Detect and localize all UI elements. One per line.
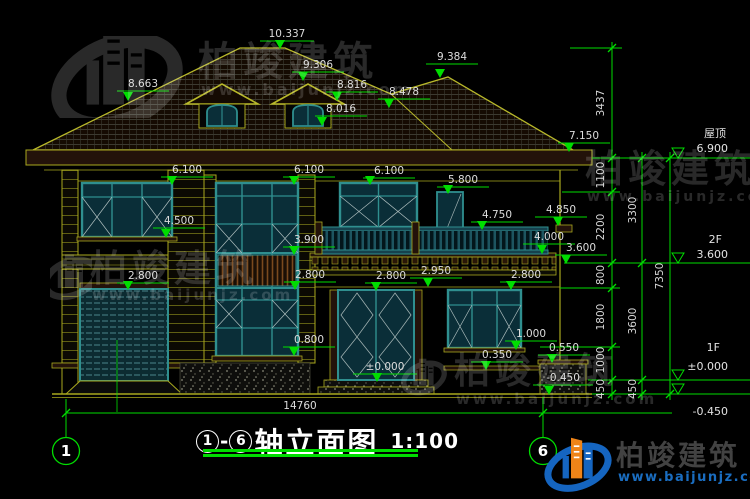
svg-text:2.800: 2.800	[128, 270, 158, 282]
level-roof-value: 6.900	[697, 142, 729, 155]
title-underline-2	[203, 454, 418, 457]
level-2f-value: 3.600	[697, 248, 729, 261]
svg-text:5.800: 5.800	[448, 174, 478, 186]
dim-800: 800	[595, 265, 607, 285]
cad-elevation-canvas: 3437 1100 2200 800 1800 1000 450 3300 36…	[0, 0, 750, 499]
dim-overall-width: 14760	[283, 400, 316, 412]
dim-7350: 7350	[654, 263, 666, 290]
svg-text:3.600: 3.600	[566, 242, 596, 254]
level-2f-label: 2F	[709, 233, 722, 246]
svg-text:0.350: 0.350	[482, 349, 512, 361]
svg-text:3.900: 3.900	[294, 234, 324, 246]
dim-3437: 3437	[595, 90, 607, 117]
svg-text:10.337: 10.337	[269, 28, 306, 40]
svg-text:1.000: 1.000	[516, 328, 546, 340]
step-2	[318, 387, 434, 394]
step-1	[324, 380, 428, 387]
level-1f-label: 1F	[707, 341, 720, 354]
svg-text:9.384: 9.384	[437, 51, 467, 63]
sill-band-right	[444, 366, 540, 370]
axis-number-left: 1	[61, 442, 71, 460]
spot-slab-right: 3.600	[555, 242, 607, 264]
stair-window-spandrel	[218, 255, 296, 286]
svg-text:8.478: 8.478	[389, 86, 419, 98]
stair-window	[216, 183, 298, 356]
sill-2f-left	[77, 237, 177, 241]
sill-stair-window	[212, 356, 302, 361]
level-marker-texts: 屋顶 6.900 2F 3.600 1F ±0.000 -0.450	[687, 127, 728, 418]
window-1f-right	[448, 290, 521, 348]
dim-1000: 1000	[595, 347, 607, 374]
railing-post-mid	[412, 222, 419, 254]
door-post-left	[330, 290, 338, 380]
svg-text:8.016: 8.016	[326, 103, 356, 115]
svg-text:4.750: 4.750	[482, 209, 512, 221]
balcony-railing	[315, 222, 548, 254]
level-ground-value: -0.450	[693, 405, 728, 418]
door-post-right	[414, 290, 422, 380]
eave-fascia	[26, 150, 592, 165]
svg-text:2.800: 2.800	[376, 270, 406, 282]
svg-text:4.500: 4.500	[164, 215, 194, 227]
title-axis-end: 6	[236, 433, 246, 449]
company-logo-icon	[542, 428, 614, 498]
svg-text:4.850: 4.850	[546, 204, 576, 216]
svg-text:6.100: 6.100	[172, 164, 202, 176]
dim-1100: 1100	[595, 162, 607, 189]
slab-band-left	[62, 255, 168, 269]
window-2f-right	[340, 183, 417, 227]
svg-text:2.800: 2.800	[295, 269, 325, 281]
svg-text:6.100: 6.100	[374, 165, 404, 177]
spot-ledge-right: 4.850	[535, 204, 587, 226]
svg-text:4.000: 4.000	[534, 231, 564, 243]
svg-text:8.663: 8.663	[128, 78, 158, 90]
company-logo: 柏竣建筑 www.baijunjz.com	[532, 426, 750, 499]
svg-text:7.150: 7.150	[569, 130, 599, 142]
title-axis-start: 1	[203, 433, 213, 449]
svg-text:0.550: 0.550	[549, 342, 579, 354]
dim-3600: 3600	[627, 308, 639, 335]
plinth-cap-right	[538, 360, 588, 364]
garage-ramp	[66, 381, 182, 394]
svg-text:±0.000: ±0.000	[366, 361, 405, 373]
dim-450b: 450	[627, 379, 639, 399]
title-underline-1	[203, 449, 418, 452]
svg-text:6.100: 6.100	[294, 164, 324, 176]
level-roof-label: 屋顶	[704, 127, 726, 140]
svg-text:0.800: 0.800	[294, 334, 324, 346]
spot-ridge-right: 9.384	[426, 51, 478, 78]
pier-garage	[168, 170, 204, 363]
svg-text:2.800: 2.800	[511, 269, 541, 281]
spot-ridge-main: 10.337	[260, 28, 314, 49]
railing-balusters	[315, 231, 548, 250]
foundation-stair	[180, 363, 310, 394]
dim-450a: 450	[595, 379, 607, 399]
svg-text:8.816: 8.816	[337, 79, 367, 91]
garage-door	[80, 289, 168, 381]
level-1f-value: ±0.000	[687, 360, 728, 373]
svg-text:2.950: 2.950	[421, 265, 451, 277]
company-logo-brand: 柏竣建筑	[616, 434, 740, 474]
svg-text:-0.450: -0.450	[546, 372, 580, 384]
pilaster-stair-left	[204, 175, 216, 363]
company-logo-url: www.baijunjz.com	[618, 470, 750, 485]
ledge-left	[52, 363, 78, 368]
dim-3300: 3300	[627, 197, 639, 224]
window-2f-left	[82, 183, 172, 237]
svg-text:9.306: 9.306	[303, 59, 333, 71]
dim-2200: 2200	[595, 214, 607, 241]
dim-1800: 1800	[595, 304, 607, 331]
spot-door-2f-head: 5.800	[437, 174, 489, 194]
